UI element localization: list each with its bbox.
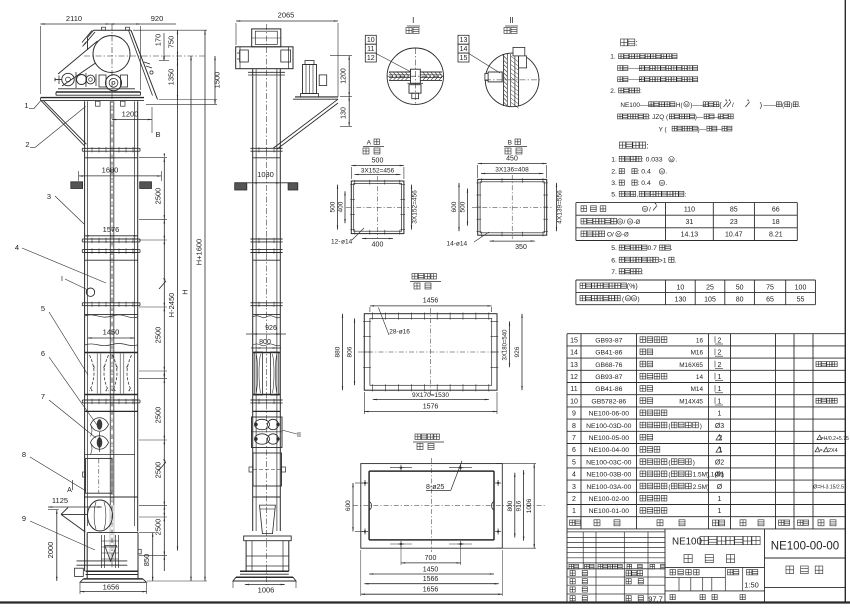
svg-text:M: M (661, 182, 664, 186)
svg-text:800: 800 (507, 500, 514, 511)
svg-text:—: — (714, 114, 721, 121)
svg-text:(%): (%) (627, 283, 638, 290)
svg-text:11: 11 (367, 46, 374, 53)
svg-text:806: 806 (347, 346, 354, 357)
svg-text:2065: 2065 (278, 11, 295, 20)
svg-text:28-ø16: 28-ø16 (389, 329, 410, 336)
svg-text:=: = (820, 448, 823, 454)
svg-text:1656: 1656 (423, 587, 439, 594)
svg-text:1: 1 (718, 398, 722, 405)
svg-text:M: M (685, 103, 688, 107)
svg-text:2500: 2500 (154, 327, 163, 344)
svg-text:12-: 12- (331, 239, 340, 246)
svg-text:2: 2 (718, 350, 722, 357)
svg-text:0.7: 0.7 (648, 245, 658, 252)
svg-text::: : (647, 142, 649, 151)
svg-text:M: M (629, 220, 632, 224)
svg-text:5: 5 (572, 459, 576, 466)
svg-text:,: , (636, 192, 638, 199)
svg-text:14-ø14: 14-ø14 (447, 241, 468, 248)
svg-text:GB5782-86: GB5782-86 (591, 398, 626, 405)
svg-text:1350: 1350 (167, 69, 176, 86)
svg-text:13: 13 (570, 362, 578, 369)
svg-text:-Ø: -Ø (622, 233, 629, 239)
svg-text:3.: 3. (611, 180, 617, 187)
svg-text:-Ø: -Ø (634, 220, 641, 226)
svg-text:7: 7 (572, 435, 576, 442)
svg-text:55: 55 (797, 297, 805, 304)
svg-text:1125: 1125 (52, 496, 68, 505)
svg-text:4: 4 (15, 243, 19, 252)
svg-text:M: M (633, 297, 636, 301)
svg-text:170: 170 (154, 34, 163, 47)
svg-text::: : (640, 88, 642, 95)
svg-text:1006: 1006 (526, 498, 533, 513)
svg-text::: : (684, 192, 686, 199)
svg-text:1566: 1566 (423, 576, 439, 583)
svg-text:M: M (627, 297, 630, 301)
svg-text:Y (: Y ( (659, 126, 668, 133)
svg-text:2110: 2110 (66, 14, 82, 23)
svg-text:2.: 2. (611, 169, 617, 176)
svg-text:1: 1 (718, 508, 722, 515)
svg-text:1030: 1030 (257, 170, 274, 179)
svg-text:1500: 1500 (213, 72, 222, 89)
svg-text:Ø3: Ø3 (715, 423, 724, 430)
svg-text:NE100-01-00: NE100-01-00 (589, 508, 630, 515)
svg-text:2.5M): 2.5M) (693, 484, 709, 491)
svg-text:9: 9 (572, 411, 576, 418)
svg-text:80: 80 (736, 297, 744, 304)
svg-text:1:50: 1:50 (744, 581, 759, 590)
svg-text:GB93-87: GB93-87 (595, 337, 622, 344)
svg-text:8: 8 (22, 450, 26, 459)
svg-text:1656: 1656 (103, 583, 120, 592)
svg-text:13: 13 (460, 37, 468, 44)
svg-text:50: 50 (736, 284, 744, 291)
svg-text:M16: M16 (691, 350, 704, 357)
svg-text:/: / (732, 102, 734, 109)
svg-text:9: 9 (22, 514, 26, 523)
svg-text:ø14: ø14 (341, 239, 353, 246)
svg-text:14: 14 (696, 374, 704, 381)
svg-text:1576: 1576 (423, 404, 439, 411)
svg-text:GB68-76: GB68-76 (595, 362, 622, 369)
svg-text:.: . (671, 245, 673, 252)
svg-text:——: —— (628, 66, 642, 73)
svg-text:880: 880 (335, 346, 342, 357)
svg-text:/: / (612, 231, 614, 238)
svg-text::: : (642, 269, 644, 276)
svg-text:500: 500 (372, 158, 384, 165)
svg-text:75: 75 (766, 284, 774, 291)
svg-text:31: 31 (686, 219, 694, 226)
svg-text:Ø1: Ø1 (715, 472, 724, 479)
svg-text:): ) (790, 102, 792, 109)
svg-text:NE100: NE100 (672, 537, 703, 548)
svg-text:NE100-03B-00: NE100-03B-00 (586, 472, 631, 479)
svg-text:130: 130 (341, 107, 348, 119)
svg-text:400: 400 (372, 242, 384, 249)
svg-text:NE100-03A-00: NE100-03A-00 (586, 484, 631, 491)
svg-text:2: 2 (718, 362, 722, 369)
svg-text:)—: )— (695, 114, 704, 121)
svg-text:65: 65 (766, 297, 774, 304)
svg-text:1450: 1450 (103, 328, 120, 337)
svg-text:1: 1 (718, 386, 722, 393)
svg-text:500: 500 (330, 201, 337, 212)
svg-text:1680: 1680 (102, 166, 119, 175)
svg-text:): ) (693, 459, 695, 466)
svg-text:23: 23 (730, 219, 738, 226)
svg-text:M16X65: M16X65 (679, 362, 703, 369)
svg-text:2500: 2500 (154, 519, 163, 536)
svg-text:3: 3 (572, 484, 576, 491)
svg-text:: 0.4: : 0.4 (638, 169, 651, 176)
svg-text:2: 2 (25, 140, 29, 149)
svg-text:1: 1 (572, 508, 576, 515)
svg-text:18: 18 (772, 219, 780, 226)
svg-text:25: 25 (706, 284, 714, 291)
svg-text:926: 926 (514, 346, 521, 357)
svg-text:I: I (412, 16, 414, 25)
svg-text:600: 600 (345, 500, 352, 511)
svg-text:16: 16 (696, 337, 704, 344)
svg-text:6: 6 (572, 447, 576, 454)
svg-text:.: . (674, 257, 676, 264)
svg-text:8.21: 8.21 (769, 232, 783, 239)
svg-text:1576: 1576 (103, 225, 120, 234)
svg-text:M14X45: M14X45 (679, 398, 703, 405)
svg-text:)—: )— (698, 126, 707, 133)
svg-text:700: 700 (425, 555, 437, 562)
svg-text:110: 110 (684, 207, 695, 214)
svg-text:105: 105 (704, 297, 716, 304)
svg-text:100: 100 (795, 284, 807, 291)
svg-text:2X4: 2X4 (828, 448, 838, 454)
svg-text:.: . (666, 169, 668, 176)
svg-text:750: 750 (167, 36, 176, 49)
svg-text:GB93-87: GB93-87 (595, 374, 622, 381)
svg-text:3X136=408: 3X136=408 (495, 166, 529, 173)
svg-text:3X180=540: 3X180=540 (503, 329, 509, 361)
svg-text:1.: 1. (610, 54, 616, 61)
svg-text:NE100-00-00: NE100-00-00 (771, 541, 839, 553)
svg-text:/: / (649, 206, 651, 213)
svg-text:926: 926 (265, 325, 277, 332)
svg-text:B: B (508, 140, 512, 147)
svg-text:H-2450: H-2450 (167, 293, 176, 318)
svg-text:M: M (619, 220, 622, 224)
svg-text:2.: 2. (610, 88, 616, 95)
svg-text:H: H (180, 289, 189, 294)
svg-text:66: 66 (772, 207, 780, 214)
svg-text:11: 11 (570, 386, 577, 393)
svg-text:A: A (367, 140, 372, 147)
svg-text:.: . (799, 102, 801, 109)
svg-text:>1: >1 (659, 257, 667, 264)
svg-text:NE100-03C-00: NE100-03C-00 (586, 459, 632, 466)
svg-text:1: 1 (718, 496, 722, 503)
svg-text:14.13: 14.13 (681, 232, 699, 239)
svg-text:1200: 1200 (122, 110, 139, 119)
svg-text:1200: 1200 (341, 68, 348, 84)
svg-text:=H/0.2+5.75: =H/0.2+5.75 (821, 436, 849, 442)
svg-text:600: 600 (451, 201, 458, 212)
svg-text:14: 14 (460, 46, 468, 53)
svg-text:M: M (644, 208, 647, 212)
svg-text:1: 1 (24, 101, 28, 110)
svg-text:1006: 1006 (258, 586, 275, 595)
svg-text:2500: 2500 (154, 407, 163, 424)
svg-text:10: 10 (677, 284, 685, 291)
svg-text:400: 400 (338, 201, 345, 212)
svg-text:GB41-86: GB41-86 (595, 350, 622, 357)
svg-text:15: 15 (570, 337, 578, 344)
svg-text:10: 10 (367, 37, 375, 44)
svg-text:H(: H( (676, 102, 684, 109)
svg-text:M: M (670, 158, 673, 162)
svg-text:: 0.033: : 0.033 (642, 157, 663, 164)
svg-text:1.: 1. (611, 157, 617, 164)
svg-text:.: . (676, 157, 678, 164)
svg-text:4: 4 (572, 472, 576, 479)
svg-text:NE100-05-00: NE100-05-00 (589, 435, 630, 442)
svg-text:A: A (67, 487, 72, 494)
svg-text:5.: 5. (611, 192, 617, 199)
svg-text:7.: 7. (611, 269, 617, 276)
svg-text:Ø=H-3.15/2.5: Ø=H-3.15/2.5 (813, 485, 844, 491)
svg-text:2500: 2500 (154, 462, 163, 479)
svg-text:85: 85 (730, 207, 738, 214)
svg-text:6: 6 (41, 349, 45, 358)
svg-text:H+1600: H+1600 (194, 239, 203, 265)
svg-text:2500: 2500 (154, 188, 163, 205)
svg-text:3: 3 (47, 192, 51, 201)
svg-text:1: 1 (718, 374, 722, 381)
svg-text::: : (636, 39, 638, 48)
svg-text:500: 500 (460, 201, 467, 212)
svg-text:8-ø25: 8-ø25 (426, 484, 444, 491)
svg-text:GB41-86: GB41-86 (595, 386, 622, 393)
svg-text:M14: M14 (691, 386, 704, 393)
svg-text:2: 2 (718, 337, 722, 344)
svg-text:2000: 2000 (46, 542, 55, 559)
svg-text:II: II (509, 16, 513, 25)
svg-text:920: 920 (151, 14, 164, 23)
svg-text:15: 15 (460, 55, 468, 62)
svg-text:97.7: 97.7 (648, 595, 663, 604)
svg-text:12: 12 (367, 55, 375, 62)
svg-text:M: M (617, 233, 620, 237)
svg-text:14: 14 (570, 350, 578, 357)
svg-text:NE100-04-00: NE100-04-00 (589, 447, 630, 454)
svg-text:Ø2: Ø2 (715, 459, 724, 466)
svg-text:1456: 1456 (423, 298, 439, 305)
svg-text:B: B (156, 130, 161, 139)
svg-text:.: . (666, 180, 668, 187)
svg-text:4X139=556: 4X139=556 (557, 190, 564, 224)
svg-text:450: 450 (506, 156, 518, 163)
svg-text:2: 2 (719, 435, 723, 442)
svg-text:——: —— (628, 77, 642, 84)
svg-text:2: 2 (572, 496, 576, 503)
svg-text:NE100-03D-00: NE100-03D-00 (586, 423, 632, 430)
svg-text:Ø: Ø (717, 484, 723, 491)
svg-text:8: 8 (572, 423, 576, 430)
svg-text:M: M (661, 170, 664, 174)
svg-text:3X152=456: 3X152=456 (412, 190, 419, 224)
svg-text:NE100-02-00: NE100-02-00 (589, 496, 630, 503)
svg-text:12: 12 (570, 374, 578, 381)
svg-text:130: 130 (675, 297, 687, 304)
svg-text:: 0.4: : 0.4 (638, 180, 651, 187)
svg-text:5: 5 (41, 304, 45, 313)
svg-text:10: 10 (570, 398, 578, 405)
svg-text:): ) (638, 296, 640, 303)
svg-text:1: 1 (719, 447, 723, 454)
svg-text:9X170=1530: 9X170=1530 (412, 392, 449, 399)
svg-text:3X152=456: 3X152=456 (361, 167, 395, 174)
svg-text:6.: 6. (611, 257, 617, 264)
svg-text:/: / (624, 219, 626, 226)
svg-text:——: —— (763, 102, 776, 109)
svg-text:NE100-06-00: NE100-06-00 (589, 411, 630, 418)
svg-text:350: 350 (515, 244, 527, 251)
svg-text:1450: 1450 (423, 566, 439, 573)
svg-text:I: I (61, 276, 63, 283)
svg-text:916: 916 (516, 500, 523, 511)
svg-text:10.47: 10.47 (725, 232, 743, 239)
svg-text:5.: 5. (611, 245, 617, 252)
svg-text:1: 1 (718, 411, 722, 418)
svg-text:7: 7 (41, 392, 45, 401)
svg-text:: JZQ (: : JZQ ( (649, 114, 669, 121)
svg-text:II: II (297, 432, 301, 439)
svg-text:): ) (700, 423, 702, 430)
